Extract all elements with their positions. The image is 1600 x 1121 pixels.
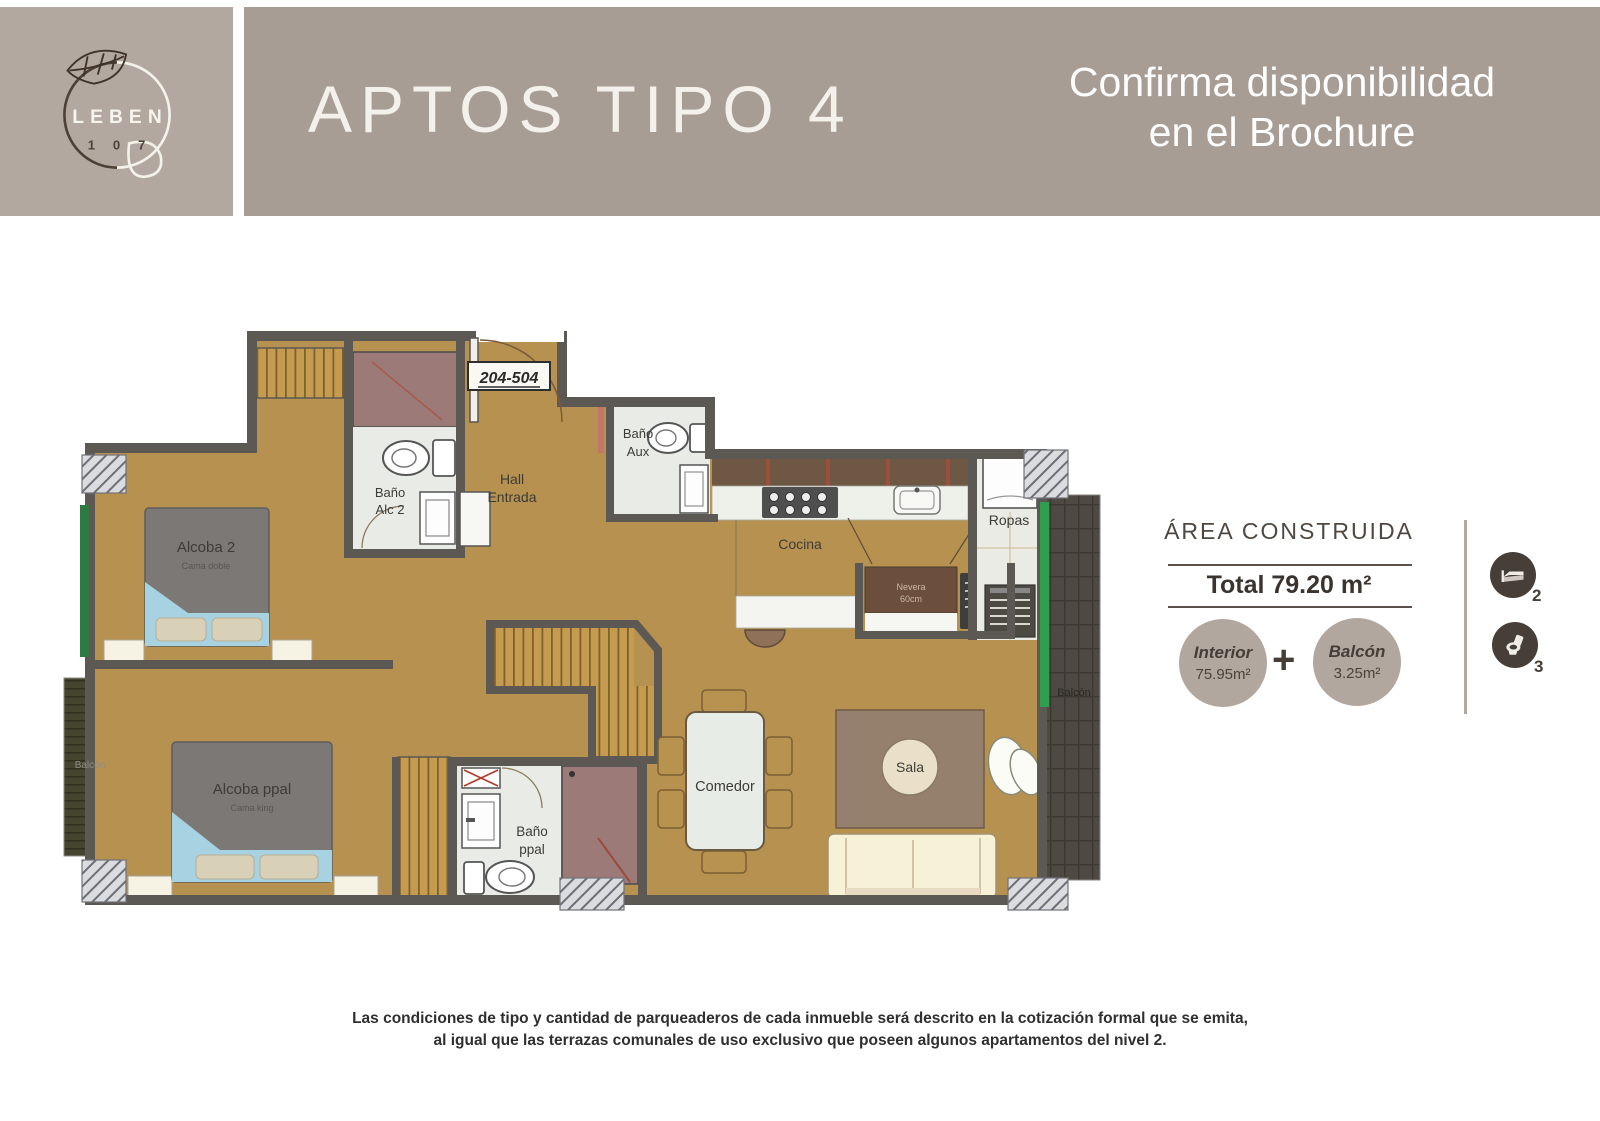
toilet — [464, 861, 534, 894]
page-title: APTOS TIPO 4 — [308, 70, 853, 146]
bathroom-alc2 — [353, 352, 457, 549]
label-bano-ppal-1: Baño — [516, 824, 548, 839]
floorplan: 204-504 Alcoba 2 Cama doble Baño Alc 2 H… — [62, 328, 1110, 918]
availability-note: Confirma disponibilidad en el Brochure — [1004, 57, 1560, 157]
sink — [894, 486, 940, 514]
label-balcon-left: Balcón — [75, 760, 106, 771]
label-comedor: Comedor — [695, 779, 755, 795]
bathrooms-count: 3 — [1534, 657, 1543, 677]
brand-name: LEBEN — [72, 107, 168, 128]
interior-area-circle: Interior 75.95m² — [1179, 619, 1267, 707]
balcon-label: Balcón — [1329, 642, 1386, 662]
label-hall-2: Entrada — [487, 489, 536, 505]
disclaimer: Las condiciones de tipo y cantidad de pa… — [0, 1008, 1600, 1053]
divider-bottom — [1168, 606, 1412, 608]
interior-label: Interior — [1194, 643, 1253, 663]
bathroom-aux — [598, 405, 710, 515]
toilet-icon — [1502, 632, 1528, 658]
plus-sign: + — [1272, 638, 1295, 683]
bedrooms-stat — [1490, 552, 1536, 598]
label-bano-aux-2: Aux — [627, 444, 650, 459]
label-alcoba-ppal-sub: Cama king — [230, 803, 273, 813]
label-sala: Sala — [896, 759, 924, 775]
brochure-page: LEBEN 1 0 7 APTOS TIPO 4 Confirma dispon… — [0, 0, 1600, 1121]
vent-box — [462, 768, 500, 788]
closet-alcoba-ppal — [398, 757, 450, 902]
disclaimer-line2: al igual que las terrazas comunales de u… — [0, 1030, 1600, 1052]
label-bano-aux-1: Baño — [623, 426, 653, 441]
area-total: Total 79.20 m² — [1148, 571, 1430, 600]
leben-logo: LEBEN 1 0 7 — [31, 26, 203, 198]
label-bano-alc2-2: Alc 2 — [376, 502, 405, 517]
balcony-door-right — [1040, 502, 1049, 707]
toilet — [648, 423, 708, 453]
bathroom-door-panel — [460, 492, 490, 546]
label-bano-ppal-2: ppal — [519, 842, 545, 857]
label-alcoba-ppal: Alcoba ppal — [213, 781, 291, 798]
label-alcoba2-sub: Cama doble — [182, 561, 231, 571]
sofa — [828, 834, 996, 898]
label-balcon-right: Balcón — [1057, 687, 1091, 699]
bed-icon — [1499, 561, 1527, 589]
bedrooms-count: 2 — [1532, 586, 1541, 606]
interior-value: 75.95m² — [1195, 666, 1250, 683]
availability-line1: Confirma disponibilidad — [1004, 57, 1560, 107]
panel-vertical-divider — [1464, 520, 1467, 714]
toilet — [383, 440, 455, 476]
logo-block: LEBEN 1 0 7 — [0, 7, 233, 216]
shower — [562, 766, 638, 884]
balcony-door-left — [80, 505, 89, 657]
label-hall-1: Hall — [500, 471, 524, 487]
closet-alcoba2 — [256, 348, 344, 398]
bathrooms-stat — [1492, 622, 1538, 668]
balcon-value: 3.25m² — [1334, 665, 1381, 682]
disclaimer-line1: Las condiciones de tipo y cantidad de pa… — [0, 1008, 1600, 1030]
area-panel-title: ÁREA CONSTRUIDA — [1148, 518, 1430, 545]
header-band: APTOS TIPO 4 Confirma disponibilidad en … — [244, 7, 1600, 216]
label-ropas: Ropas — [989, 512, 1029, 528]
availability-line2: en el Brochure — [1004, 107, 1560, 157]
brand-number: 1 0 7 — [87, 137, 152, 152]
divider-top — [1168, 564, 1412, 566]
bar-counter — [736, 596, 862, 628]
balcon-area-circle: Balcón 3.25m² — [1313, 618, 1401, 706]
unit-range-tag: 204-504 — [468, 362, 550, 390]
stove — [762, 487, 838, 518]
label-cocina: Cocina — [778, 536, 822, 552]
label-alcoba2: Alcoba 2 — [177, 539, 235, 556]
unit-range: 204-504 — [479, 370, 539, 387]
vanity — [462, 794, 500, 848]
label-nevera-1: Nevera — [896, 582, 925, 592]
label-nevera-2: 60cm — [900, 594, 922, 604]
label-bano-alc2-1: Baño — [375, 485, 405, 500]
